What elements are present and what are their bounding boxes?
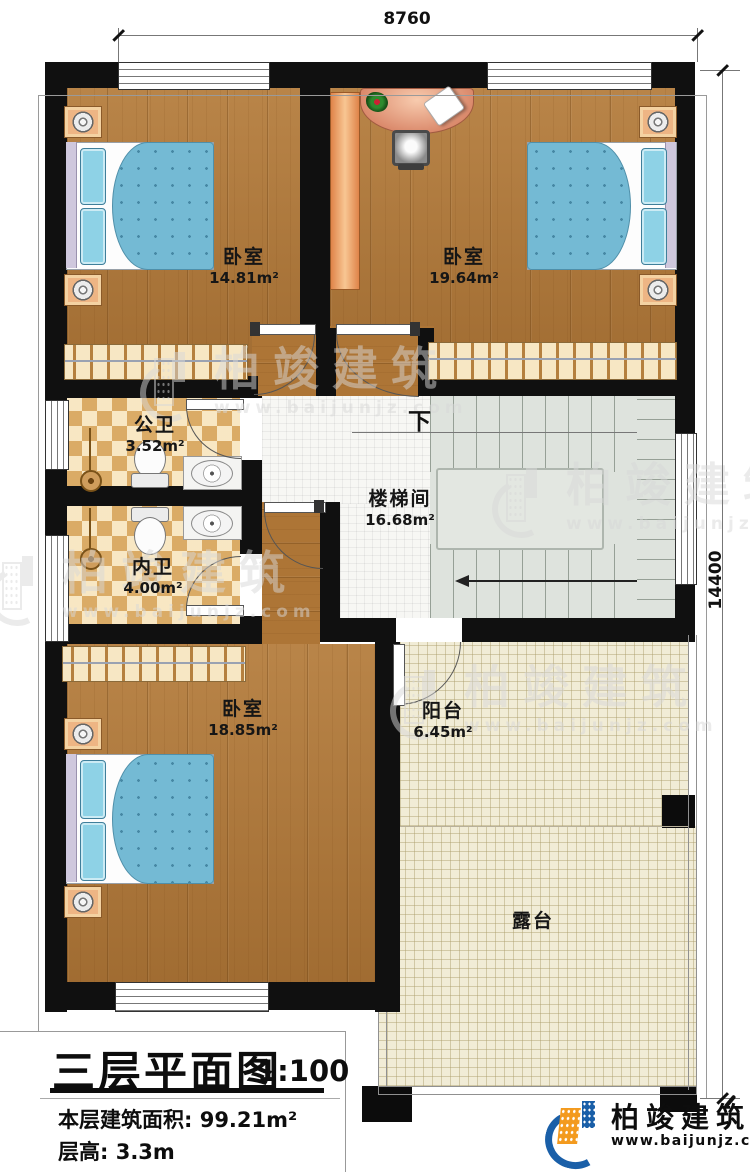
balcony-rail-inner (696, 635, 697, 1094)
terrace-floor (378, 826, 697, 1086)
window-left-bath1 (45, 400, 69, 470)
title-thin-rule (40, 1098, 340, 1099)
shower-rod (89, 428, 91, 472)
stair-direction-line (468, 580, 637, 582)
bed-tl-blanket (112, 142, 214, 270)
room-label-balcony: 阳台6.45m² (413, 700, 472, 741)
nightstand (639, 106, 677, 138)
wardrobe-tall-orange (330, 92, 360, 290)
door-leaf-public-bath (186, 399, 244, 410)
wardrobe-b (62, 646, 246, 682)
stair-break-line (352, 432, 637, 433)
sink-icon (191, 510, 233, 537)
floor-area-text: 本层建筑面积: 99.21m² (58, 1104, 297, 1134)
pillar-balcony-right (662, 795, 695, 828)
room-label-stairwell: 楼梯间16.68m² (365, 488, 435, 529)
pillar-terrace-left (362, 1086, 412, 1122)
bed-tr-pillow (641, 208, 667, 265)
wardrobe-tl (64, 344, 248, 380)
door-leaf-balcony (393, 644, 405, 706)
window-bottom (115, 982, 269, 1012)
balcony-terrace-divider (400, 826, 688, 827)
monitor-stand (398, 164, 424, 170)
plan-scale: 1:100 (257, 1054, 349, 1088)
terrace-rail-left-2 (386, 1012, 387, 1086)
bed-b-blanket (112, 754, 214, 884)
bed-b-pillow (80, 822, 106, 881)
room-label-public-bath: 公卫3.52m² (125, 414, 184, 455)
bed-tr-pillow (641, 148, 667, 205)
door-leaf-bedroom-tl (252, 324, 316, 335)
company-website: www.baijunjz.com (611, 1133, 750, 1149)
wardrobe-tr (428, 342, 677, 380)
stair-down-label: 下 (408, 402, 431, 436)
stair-direction-arrowhead (455, 575, 469, 587)
stair-flight-right (637, 396, 675, 620)
door-hinge (410, 322, 420, 336)
room-label-terrace: 露台 (512, 910, 554, 933)
toilet-icon (134, 517, 166, 555)
room-label-inner-bath: 内卫4.00m² (123, 556, 182, 597)
door-leaf-bedroom-tr (336, 324, 420, 335)
door-leaf-inner-bath (186, 605, 244, 616)
watermark-logo-icon (0, 554, 40, 618)
window-top-left (118, 62, 270, 90)
floor-plan-canvas: 柏竣建筑 www.baijunjz.com 柏竣建筑 www.baijunjz.… (0, 0, 750, 1172)
bed-tr-blanket (527, 142, 631, 270)
bed-tl-pillow (80, 208, 106, 265)
wall-bath-bottom (45, 624, 262, 644)
shower-head-icon (80, 548, 102, 570)
dim-line-top (118, 35, 697, 36)
site-boundary-top (38, 95, 706, 96)
wall-bedroom-divider (300, 88, 330, 330)
bed-b-headboard (66, 754, 77, 882)
stair-flight-top (430, 396, 637, 472)
title-block: 三层平面图 1:100 本层建筑面积: 99.21m² 层高: 3.3m (0, 1031, 346, 1172)
dim-text-width: 8760 (377, 9, 437, 29)
room-label-bedroom-b: 卧室18.85m² (208, 698, 278, 739)
floor-height-text: 层高: 3.3m (58, 1136, 175, 1166)
company-logo: 柏竣建筑 www.baijunjz.com (545, 1095, 750, 1157)
door-gap-balcony (396, 618, 462, 642)
toilet-tank (131, 473, 169, 488)
balcony-rail-outer (688, 635, 689, 1090)
nightstand (64, 106, 102, 138)
window-top-right (487, 62, 652, 90)
wall-vestibule-right (320, 502, 340, 622)
wall-door-pier-left (316, 328, 336, 396)
terrace-rail-left-1 (378, 1012, 379, 1094)
shower-head-icon (80, 470, 102, 492)
door-hinge (250, 322, 260, 336)
sink-icon (191, 460, 233, 487)
nightstand (639, 274, 677, 306)
door-hinge (314, 500, 324, 513)
computer-monitor (392, 130, 430, 166)
room-label-bedroom-tl: 卧室14.81m² (209, 246, 279, 287)
bed-b-pillow (80, 760, 106, 819)
window-right-stair (675, 433, 697, 585)
title-underline (50, 1088, 324, 1093)
nightstand (64, 718, 102, 750)
shower-rod (89, 508, 91, 552)
dim-text-height: 14400 (706, 550, 726, 610)
nightstand (64, 274, 102, 306)
bed-tl-headboard (66, 142, 77, 268)
bed-tl-pillow (80, 148, 106, 205)
site-boundary-left (38, 95, 39, 1031)
company-logo-icon (545, 1095, 603, 1157)
stair-landing-platform (436, 468, 604, 550)
company-name: 柏竣建筑 (611, 1103, 750, 1134)
nightstand (64, 886, 102, 918)
window-left-bath2 (45, 535, 69, 642)
wall-balcony-top (320, 618, 695, 642)
terrace-rail-bottom-1 (378, 1086, 697, 1087)
room-label-bedroom-tr: 卧室19.64m² (429, 246, 499, 287)
